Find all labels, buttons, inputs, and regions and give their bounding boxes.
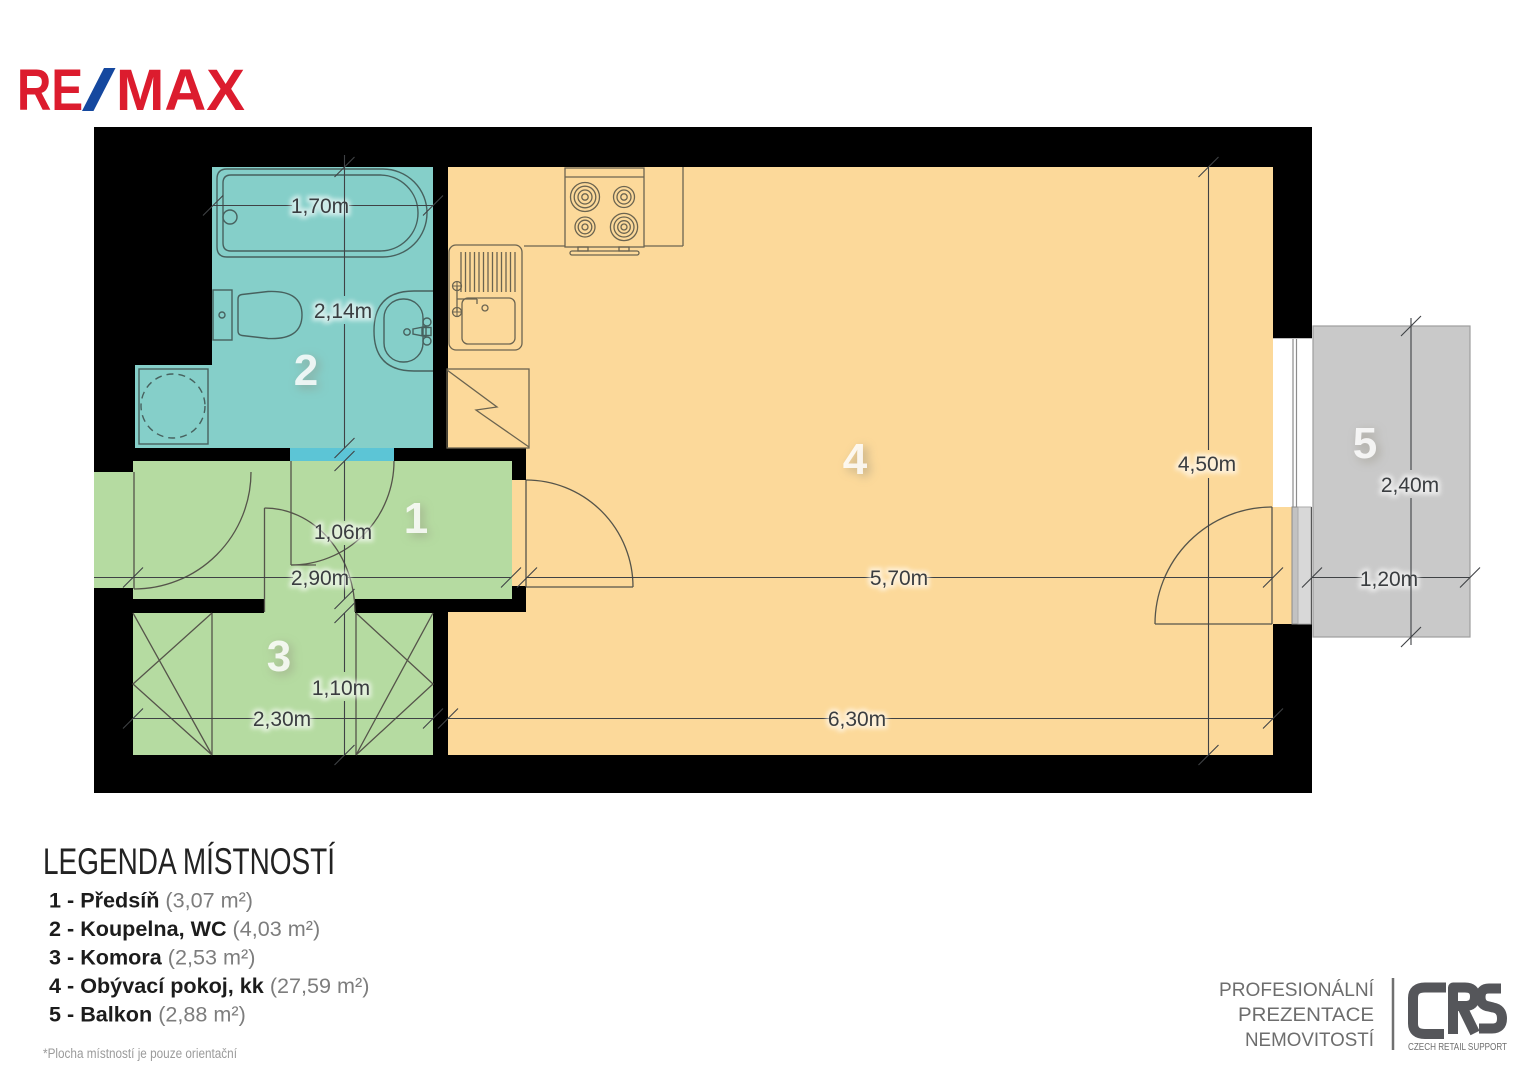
svg-text:RE: RE [17,59,83,124]
svg-text:1,20m: 1,20m [1360,568,1418,591]
svg-text:*Plocha místností je pouze ori: *Plocha místností je pouze orientační [43,1046,237,1061]
svg-text:2,14m: 2,14m [314,300,372,323]
svg-text:2 - Koupelna, WC (4,03 m²): 2 - Koupelna, WC (4,03 m²) [49,916,320,941]
svg-text:4,50m: 4,50m [1178,453,1236,476]
svg-text:5,70m: 5,70m [870,567,928,590]
svg-text:3: 3 [267,632,291,681]
svg-text:1,70m: 1,70m [291,195,349,218]
svg-text:4: 4 [843,435,868,484]
svg-text:5 - Balkon (2,88 m²): 5 - Balkon (2,88 m²) [49,1002,246,1027]
svg-text:PROFESIONÁLNÍ: PROFESIONÁLNÍ [1219,980,1375,1001]
svg-text:CZECH RETAIL SUPPORT: CZECH RETAIL SUPPORT [1408,1042,1507,1053]
svg-text:NEMOVITOSTÍ: NEMOVITOSTÍ [1245,1030,1375,1051]
svg-text:1,10m: 1,10m [312,677,370,700]
svg-text:MAX: MAX [116,58,245,123]
svg-text:1,06m: 1,06m [314,521,372,544]
svg-text:1: 1 [404,494,428,543]
svg-text:1 - Předsíň (3,07 m²): 1 - Předsíň (3,07 m²) [49,888,253,913]
svg-text:PREZENTACE: PREZENTACE [1238,1005,1374,1026]
svg-text:LEGENDA MÍSTNOSTÍ: LEGENDA MÍSTNOSTÍ [43,841,336,882]
svg-text:4 - Obývací pokoj, kk (27,59 m: 4 - Obývací pokoj, kk (27,59 m²) [49,973,369,998]
svg-text:2: 2 [294,346,318,395]
svg-text:5: 5 [1353,419,1377,468]
svg-text:2,40m: 2,40m [1381,474,1439,497]
svg-text:6,30m: 6,30m [828,708,886,731]
svg-text:2,30m: 2,30m [253,708,311,731]
svg-text:3 - Komora (2,53 m²): 3 - Komora (2,53 m²) [49,945,255,970]
svg-text:2,90m: 2,90m [291,567,349,590]
